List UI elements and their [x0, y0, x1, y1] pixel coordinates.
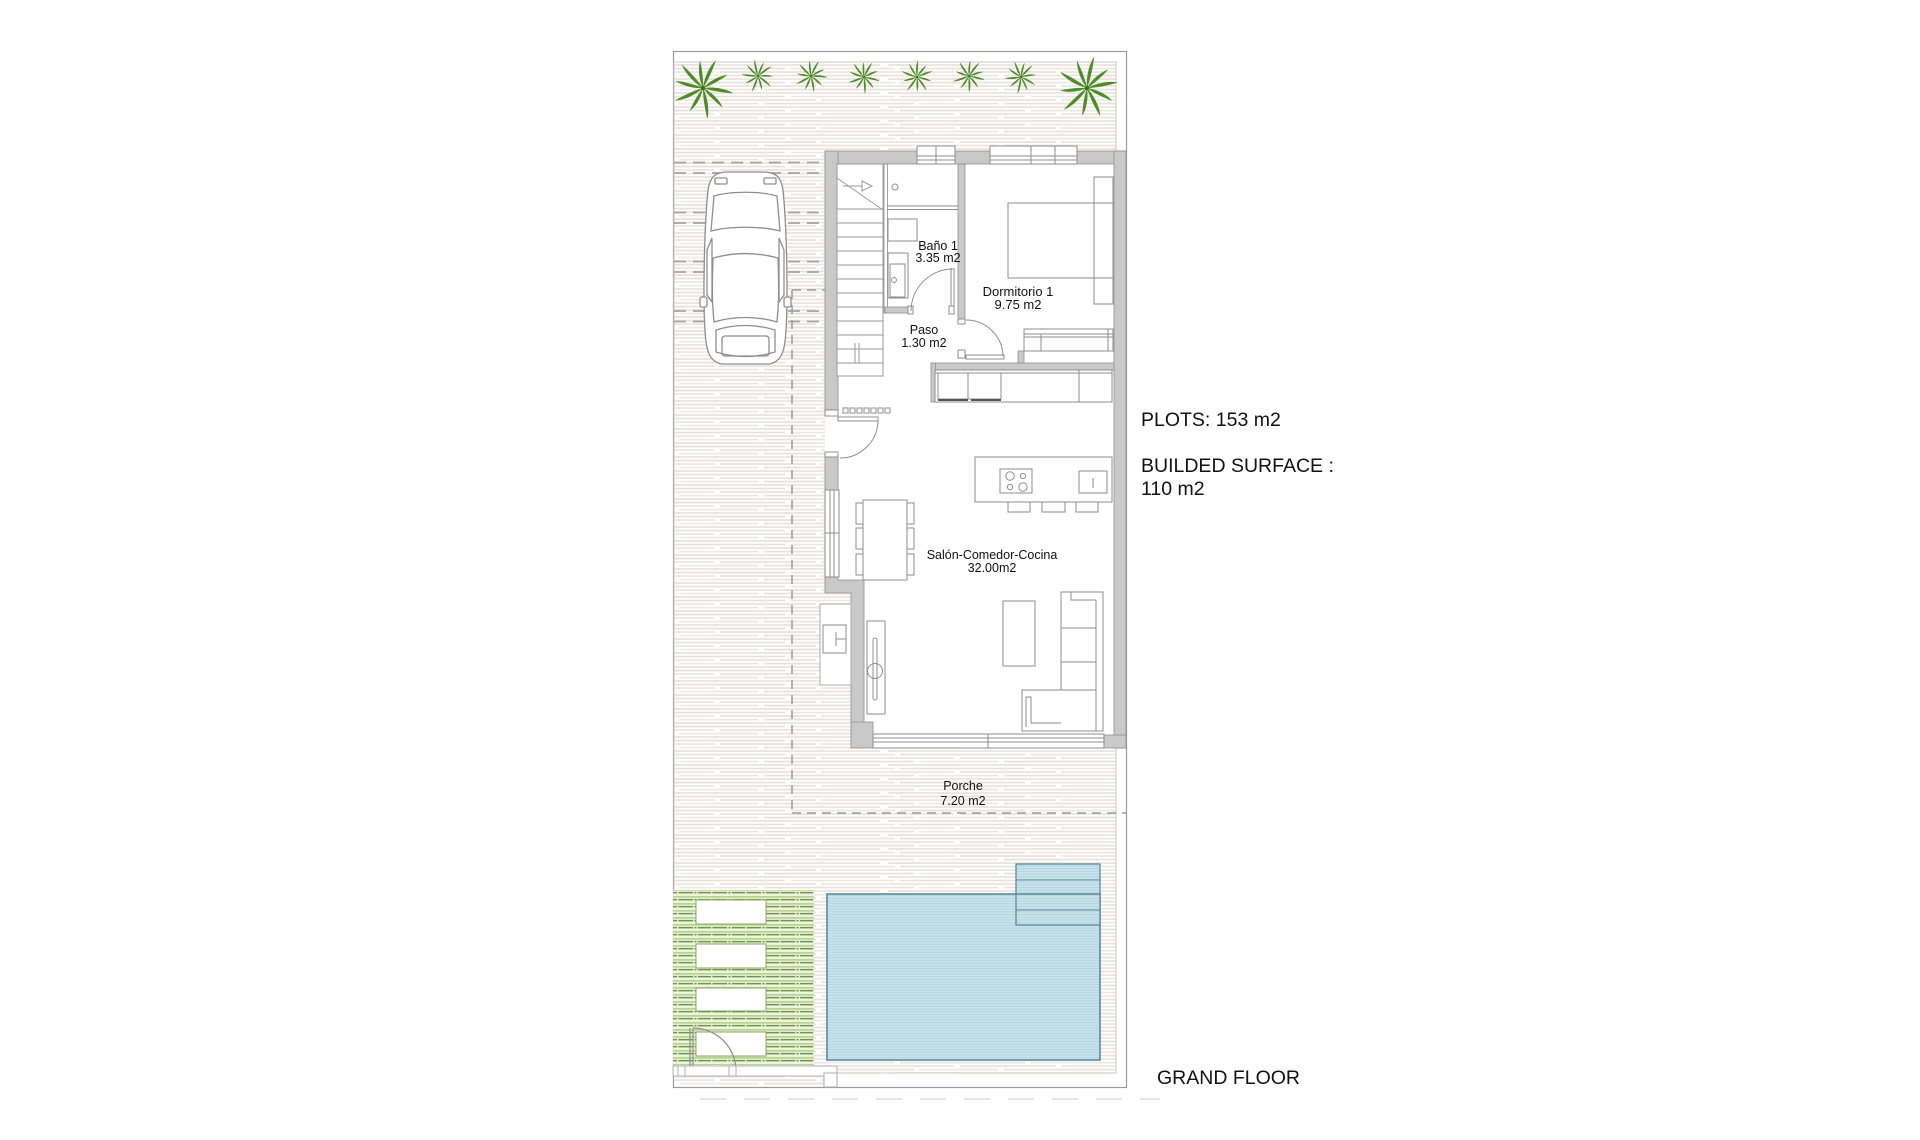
svg-text:3.35 m2: 3.35 m2	[915, 251, 960, 265]
svg-text:Salón-Comedor-Cocina: Salón-Comedor-Cocina	[927, 548, 1058, 562]
svg-text:Porche: Porche	[943, 779, 983, 793]
svg-text:GRAND FLOOR: GRAND FLOOR	[1157, 1067, 1300, 1089]
svg-text:PLOTS: 153 m2: PLOTS: 153 m2	[1141, 409, 1281, 431]
svg-text:1.30 m2: 1.30 m2	[901, 336, 946, 350]
svg-text:110 m2: 110 m2	[1141, 478, 1205, 500]
svg-text:BUILDED SURFACE :: BUILDED SURFACE :	[1141, 455, 1334, 477]
svg-text:9.75 m2: 9.75 m2	[995, 297, 1042, 312]
svg-text:7.20 m2: 7.20 m2	[940, 794, 985, 808]
svg-text:Paso: Paso	[910, 323, 939, 337]
svg-text:32.00m2: 32.00m2	[968, 561, 1017, 575]
